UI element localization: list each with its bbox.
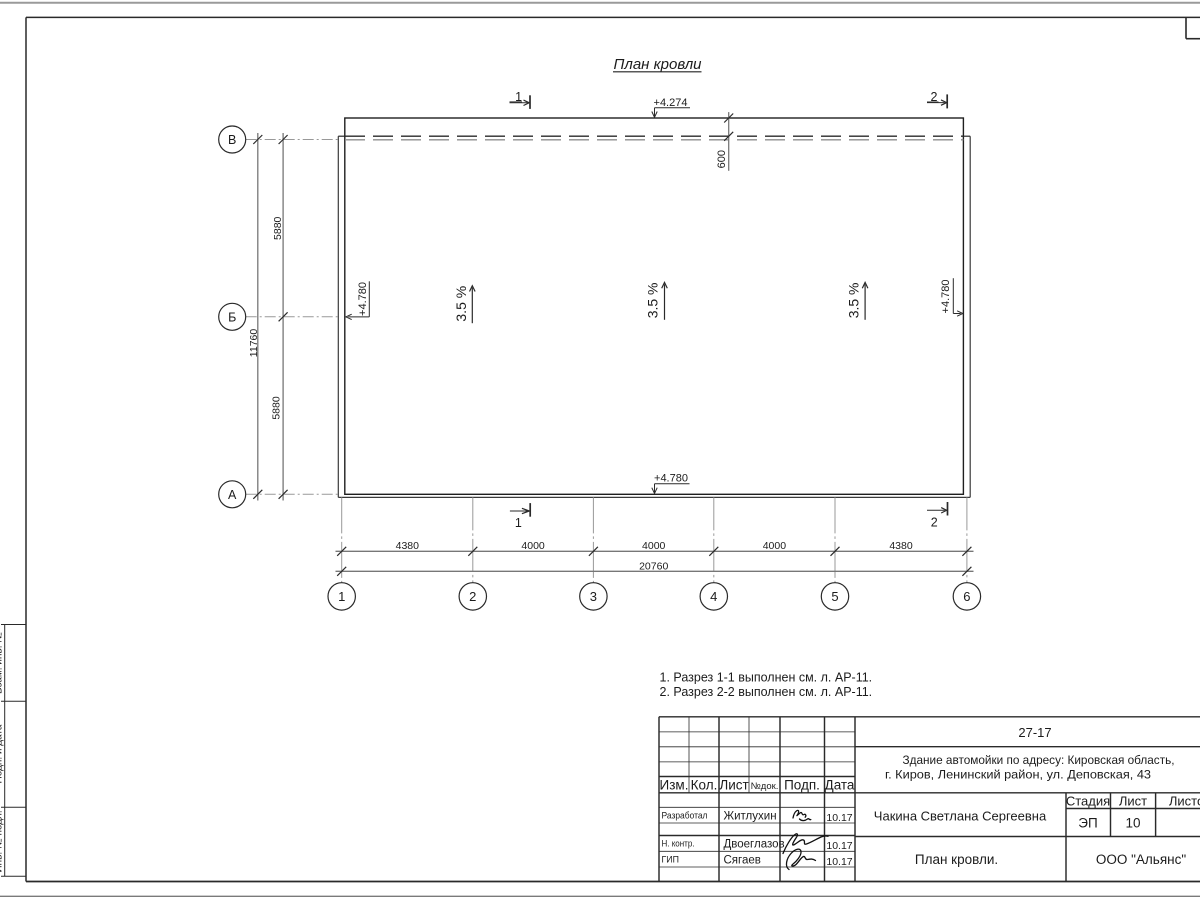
svg-text:4: 4	[710, 589, 717, 604]
svg-text:5880: 5880	[272, 216, 284, 240]
svg-text:4000: 4000	[521, 540, 545, 552]
svg-text:4380: 4380	[396, 540, 420, 552]
svg-text:10.17: 10.17	[826, 812, 852, 824]
svg-text:10.17: 10.17	[826, 840, 852, 852]
svg-text:Подп.: Подп.	[784, 777, 820, 792]
svg-text:2: 2	[931, 515, 938, 529]
svg-text:2. Разрез 2-2 выполнен см. л.: 2. Разрез 2-2 выполнен см. л. АР-11.	[660, 685, 873, 699]
svg-text:А: А	[228, 488, 237, 502]
svg-text:2: 2	[931, 90, 938, 104]
svg-text:600: 600	[716, 150, 728, 168]
svg-text:В: В	[228, 133, 236, 147]
svg-text:План кровли.: План кровли.	[915, 852, 998, 867]
svg-text:Кол.: Кол.	[691, 777, 718, 792]
svg-text:3.5 %: 3.5 %	[453, 286, 469, 322]
svg-text:10: 10	[1125, 816, 1140, 831]
svg-text:Разработал: Разработал	[662, 811, 708, 821]
svg-text:Лист: Лист	[1119, 794, 1147, 809]
svg-text:№док.: №док.	[751, 781, 779, 792]
svg-text:4000: 4000	[642, 540, 666, 552]
svg-text:2: 2	[469, 589, 476, 604]
svg-text:Здание автомойки по адресу: Ки: Здание автомойки по адресу: Кировская об…	[903, 753, 1175, 767]
svg-text:Дата: Дата	[825, 777, 855, 792]
svg-text:Н. контр.: Н. контр.	[662, 839, 695, 849]
svg-text:1: 1	[515, 516, 522, 530]
svg-text:3: 3	[590, 589, 597, 604]
svg-text:3.5 %: 3.5 %	[644, 282, 660, 318]
svg-text:Листов: Листов	[1169, 794, 1200, 809]
svg-text:Б: Б	[228, 310, 236, 324]
svg-text:20760: 20760	[639, 560, 668, 572]
svg-text:1: 1	[338, 589, 345, 604]
svg-text:+4.780: +4.780	[654, 473, 688, 485]
svg-text:Изм.: Изм.	[660, 777, 689, 792]
svg-text:Двоеглазов: Двоеглазов	[724, 839, 785, 851]
svg-text:Подп. и дата: Подп. и дата	[0, 724, 5, 783]
svg-text:Взам. инв. №: Взам. инв. №	[0, 632, 5, 694]
svg-text:ГИП: ГИП	[662, 855, 680, 865]
svg-text:Инв. № подл.: Инв. № подл.	[0, 810, 5, 872]
svg-text:Стадия: Стадия	[1066, 794, 1110, 809]
svg-text:1: 1	[515, 90, 522, 104]
svg-text:4380: 4380	[889, 540, 913, 552]
svg-text:10.17: 10.17	[826, 856, 852, 868]
svg-text:ЭП: ЭП	[1078, 816, 1097, 831]
svg-text:Чакина Светлана Сергеевна: Чакина Светлана Сергеевна	[874, 809, 1047, 824]
svg-text:27-17: 27-17	[1018, 725, 1051, 740]
svg-text:6: 6	[963, 589, 970, 604]
svg-text:+4.274: +4.274	[654, 97, 688, 109]
svg-text:+4.780: +4.780	[357, 282, 369, 316]
svg-text:3.5 %: 3.5 %	[846, 282, 862, 318]
svg-text:Житлухин: Житлухин	[724, 811, 777, 823]
svg-text:ООО "Альянс": ООО "Альянс"	[1096, 852, 1186, 867]
svg-text:+4.780: +4.780	[940, 280, 952, 314]
svg-text:5880: 5880	[270, 396, 282, 420]
svg-text:Сягаев: Сягаев	[724, 855, 761, 867]
svg-text:11760: 11760	[248, 329, 260, 358]
svg-text:1. Разрез 1-1 выполнен см. л.: 1. Разрез 1-1 выполнен см. л. АР-11.	[660, 671, 873, 685]
svg-text:Лист: Лист	[719, 777, 748, 792]
svg-text:План кровли: План кровли	[614, 56, 703, 73]
svg-text:г. Киров, Ленинский район, ул.: г. Киров, Ленинский район, ул. Деповская…	[885, 768, 1151, 782]
svg-text:4000: 4000	[763, 540, 787, 552]
svg-text:5: 5	[831, 589, 838, 604]
